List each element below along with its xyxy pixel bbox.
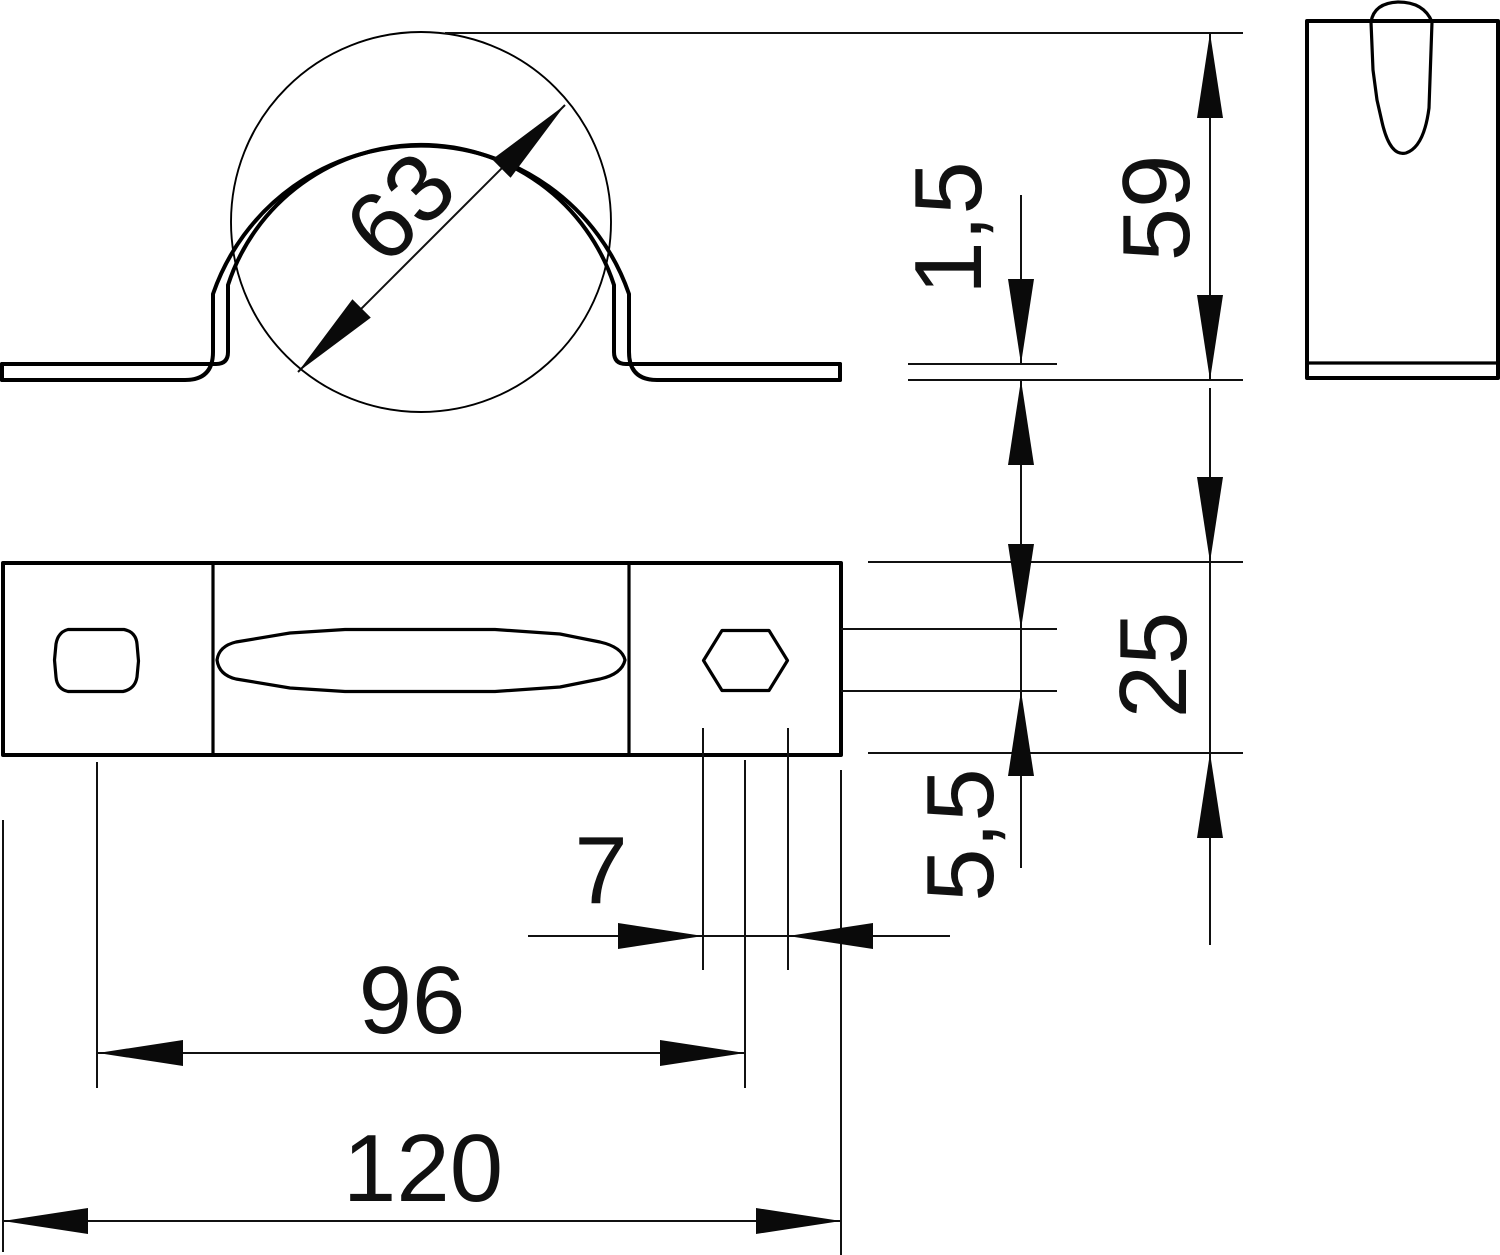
arrowhead-96-left: [98, 1040, 183, 1066]
side-profile-outline: [1307, 21, 1498, 378]
left-screw-hole: [55, 630, 139, 692]
side-view: [1307, 2, 1498, 378]
label-material-thickness: 1,5: [895, 161, 1002, 294]
technical-drawing: 63 1,5 59 5,5 25 7 96 120: [0, 0, 1500, 1255]
dimension-lines: [3, 33, 1223, 1234]
top-view: [3, 563, 841, 755]
dimension-labels: 63 1,5 59 5,5 25 7 96 120: [325, 132, 1210, 1222]
arrowhead-59-top: [1197, 33, 1223, 118]
arrowhead-63-lower: [298, 299, 371, 372]
label-hole-width: 7: [574, 817, 627, 924]
arrowhead-15-top: [1008, 279, 1034, 364]
label-clamp-height: 59: [1103, 155, 1210, 262]
arrowhead-63-upper: [492, 105, 565, 178]
side-keyhole-slot: [1371, 2, 1432, 153]
label-pipe-diameter: 63: [325, 132, 476, 283]
arrowhead-120-left: [3, 1208, 88, 1234]
drawing-canvas: 63 1,5 59 5,5 25 7 96 120: [0, 0, 1500, 1255]
arrowhead-59-bottom: [1197, 295, 1223, 380]
arrowhead-7-left: [618, 923, 703, 949]
extension-lines: [3, 33, 1243, 1255]
arrowhead-7-right: [788, 923, 873, 949]
central-slot: [217, 630, 625, 692]
label-hole-spacing: 96: [359, 947, 466, 1054]
arrowhead-120-right: [756, 1208, 841, 1234]
label-overall-length: 120: [343, 1115, 503, 1222]
arrowhead-15-bottom: [1008, 380, 1034, 465]
arrowhead-96-right: [660, 1040, 745, 1066]
label-hole-height: 5,5: [907, 768, 1014, 901]
arrowhead-25-bottom: [1197, 753, 1223, 838]
arrowhead-25-top: [1197, 477, 1223, 562]
base-plate-outline: [3, 563, 841, 755]
right-screw-hole: [704, 631, 788, 691]
arrowhead-55-bottom: [1008, 691, 1034, 776]
arrowhead-55-top: [1008, 544, 1034, 629]
label-base-width: 25: [1100, 612, 1207, 719]
